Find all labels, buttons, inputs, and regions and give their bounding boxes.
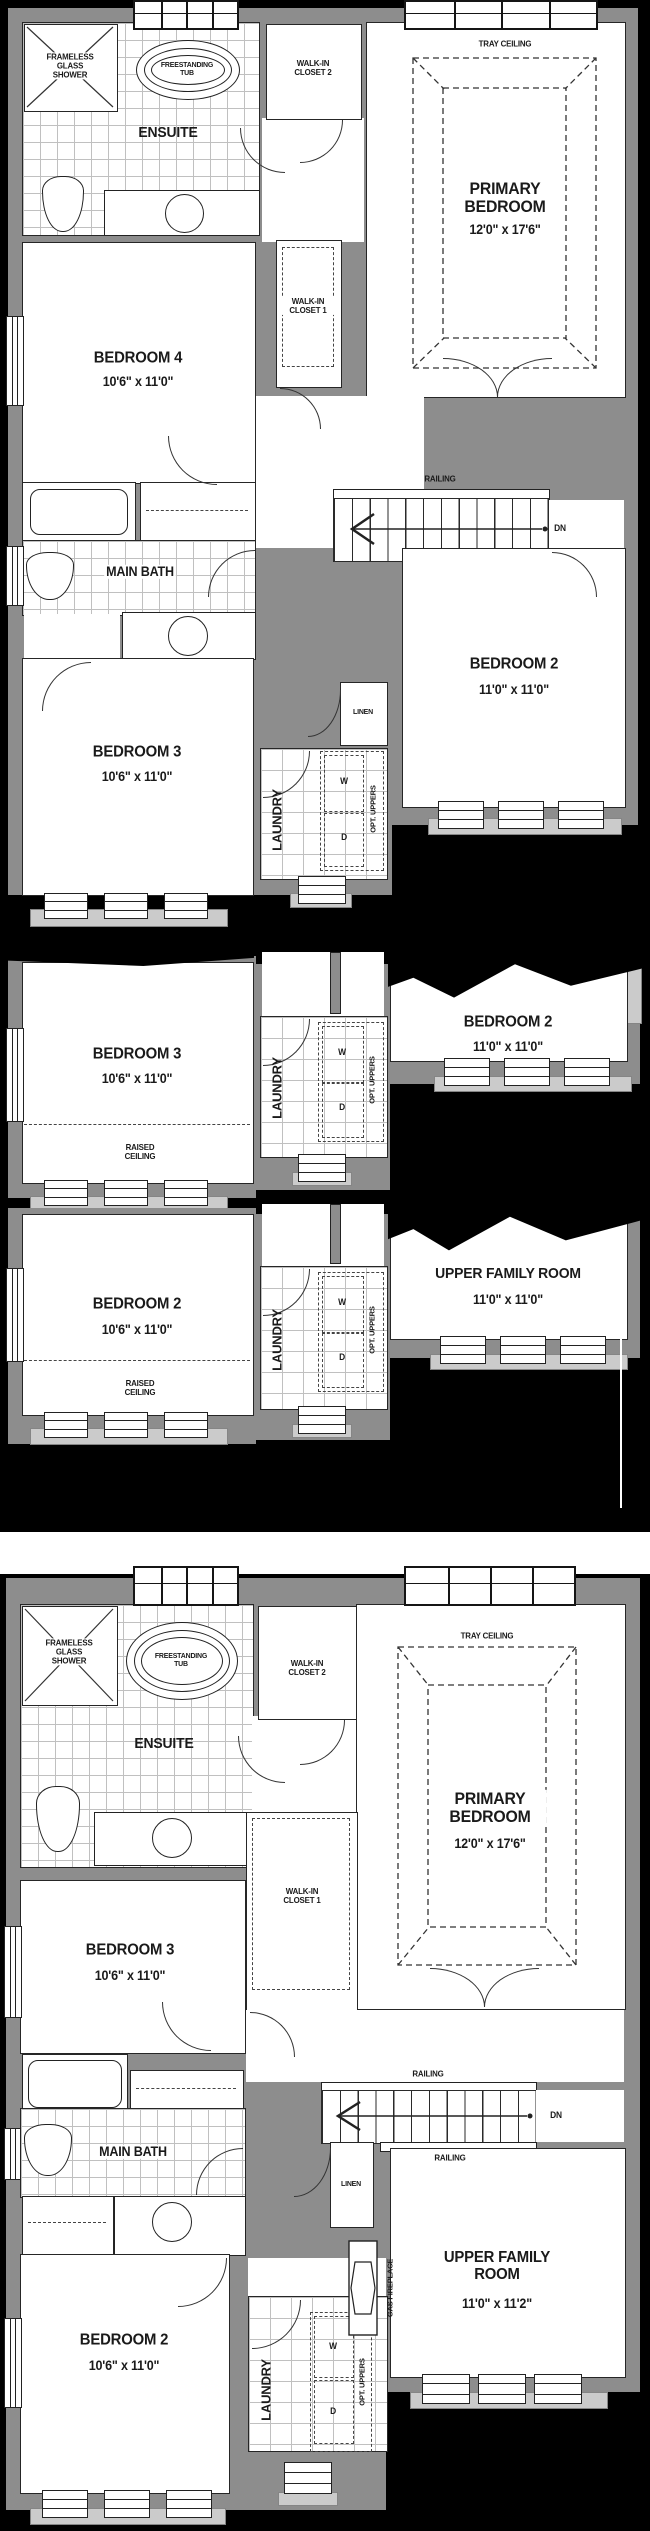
- dryer-label: D: [341, 833, 347, 843]
- bedroom3-label: BEDROOM 3: [93, 743, 181, 760]
- washer-label: W: [338, 1298, 346, 1308]
- window: [478, 2374, 526, 2404]
- dryer-label: D: [339, 1103, 345, 1113]
- closet-rod-dash: [28, 2222, 106, 2223]
- bedroom2-label: BEDROOM 2: [93, 1295, 181, 1312]
- dryer-label: D: [330, 2407, 336, 2417]
- closet-rod-dash: [136, 2088, 236, 2089]
- window: [104, 2490, 150, 2518]
- stairs-dn-arrow: [338, 498, 560, 560]
- window: [534, 2374, 582, 2404]
- tray-ceiling-label: TRAY CEILING: [479, 39, 532, 48]
- upper-family-dim: 11'0" x 11'2": [462, 2297, 532, 2311]
- opt-uppers-label: OPT. UPPERS: [358, 2358, 367, 2405]
- wic1-label: WALK-IN CLOSET 1: [275, 1887, 329, 1905]
- laundry-label: LAUNDRY: [270, 1309, 285, 1371]
- bedroom2-label: BEDROOM 2: [464, 1013, 552, 1030]
- washer-label: W: [338, 1048, 346, 1058]
- bedroom2-dim: 10'6" x 11'0": [102, 1323, 173, 1337]
- shower-label: FRAMELESS GLASS SHOWER: [39, 52, 100, 79]
- wic2-label: WALK-IN CLOSET 2: [286, 59, 340, 77]
- linen-label: LINEN: [353, 708, 373, 716]
- dryer-label: D: [339, 1353, 345, 1363]
- primary-bedroom-label: PRIMARY BEDROOM: [450, 180, 560, 216]
- upper-family-label: UPPER FAMILY ROOM: [440, 2249, 553, 2283]
- window: [166, 2490, 212, 2518]
- laundry-label: LAUNDRY: [270, 1057, 285, 1119]
- bedroom2-dim: 11'0" x 11'0": [473, 1040, 543, 1054]
- main-bath-label: MAIN BATH: [104, 565, 176, 579]
- bedroom3-dim: 10'6" x 11'0": [102, 1072, 173, 1086]
- railing-top-label: RAILING: [411, 2069, 446, 2078]
- dn-label: DN: [550, 2111, 562, 2121]
- linen-label: LINEN: [341, 2180, 361, 2188]
- bedroom4-label: BEDROOM 4: [94, 349, 182, 366]
- gas-fireplace: [348, 2240, 378, 2336]
- railing-label: RAILING: [424, 474, 455, 483]
- bedroom2-label: BEDROOM 2: [470, 655, 558, 672]
- bath-closet: [130, 2070, 244, 2110]
- tray-ceiling-label: TRAY CEILING: [459, 1631, 515, 1640]
- gas-fireplace-label: GAS FIREPLACE: [386, 2259, 395, 2317]
- washer-label: W: [340, 777, 348, 787]
- laundry-label: LAUNDRY: [270, 789, 285, 851]
- shower-label: FRAMELESS GLASS SHOWER: [38, 1638, 99, 1665]
- primary-bedroom-dim: 12'0" x 17'6": [452, 1837, 527, 1851]
- laundry-label: LAUNDRY: [259, 2359, 274, 2421]
- sink: [152, 1818, 192, 1858]
- window: [42, 2490, 88, 2518]
- opt-uppers-label: OPT. UPPERS: [369, 785, 378, 832]
- bedroom2-dim: 10'6" x 11'0": [89, 2359, 160, 2373]
- tub-label: FREESTANDING TUB: [156, 61, 217, 77]
- primary-bedroom-dim: 12'0" x 17'6": [469, 223, 540, 237]
- window-sill: [278, 2492, 338, 2506]
- primary-bedroom-label: PRIMARY BEDROOM: [433, 1790, 546, 1826]
- sink: [152, 2202, 192, 2242]
- bedroom2-label: BEDROOM 2: [80, 2331, 168, 2348]
- ensuite-label: ENSUITE: [134, 1736, 193, 1752]
- wic1-label: WALK-IN CLOSET 1: [282, 297, 334, 315]
- wic2-label: WALK-IN CLOSET 2: [280, 1659, 334, 1677]
- bedroom3-dim: 10'6" x 11'0": [102, 770, 173, 784]
- bedroom3-dim: 10'6" x 11'0": [95, 1969, 166, 1983]
- raised-ceiling-label: RAISED CEILING: [114, 1143, 166, 1161]
- ensuite-label: ENSUITE: [138, 125, 197, 141]
- bay-window: [133, 1566, 239, 1606]
- bedroom2-dim: 11'0" x 11'0": [479, 683, 549, 697]
- window: [422, 2374, 470, 2404]
- railing-bottom-label: RAILING: [433, 2153, 468, 2162]
- dn-label: DN: [554, 524, 566, 534]
- bay-window: [404, 0, 598, 30]
- bathtub: [28, 2060, 122, 2108]
- main-bath-label: MAIN BATH: [97, 2145, 169, 2159]
- floorplan-sheet: FRAMELESS GLASS SHOWER FREESTANDING TUB …: [0, 0, 650, 2531]
- window: [4, 1926, 22, 2018]
- closet: [22, 2196, 114, 2256]
- stairs-dn-arrow: [326, 2090, 546, 2142]
- bedroom4-dim: 10'6" x 11'0": [103, 375, 174, 389]
- bay-window: [133, 0, 239, 30]
- bay-window: [404, 1566, 576, 1606]
- raised-ceiling-label: RAISED CEILING: [114, 1379, 166, 1397]
- opt-uppers-label: OPT. UPPERS: [368, 1306, 377, 1353]
- window: [284, 2462, 332, 2494]
- window: [4, 2128, 21, 2180]
- bedroom3-label: BEDROOM 3: [86, 1941, 174, 1958]
- opt-uppers-label: OPT. UPPERS: [368, 1056, 377, 1103]
- upper-family-label: UPPER FAMILY ROOM: [435, 1266, 581, 1282]
- window: [4, 2318, 22, 2408]
- bedroom3-label: BEDROOM 3: [93, 1045, 181, 1062]
- tub-label: FREESTANDING TUB: [150, 1652, 211, 1668]
- washer-label: W: [329, 2342, 337, 2352]
- upper-family-dim: 11'0" x 11'0": [473, 1293, 543, 1307]
